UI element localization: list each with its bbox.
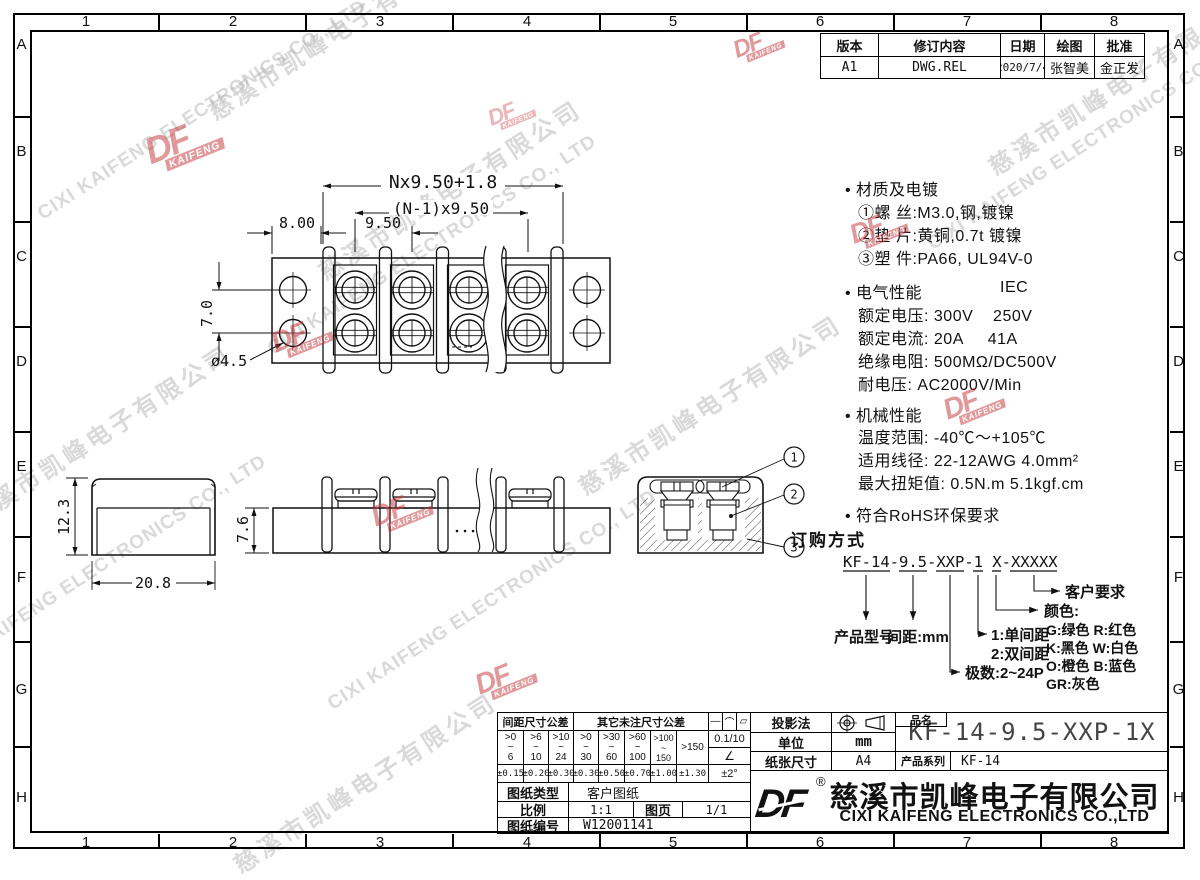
balloon-2-number: 2: [790, 488, 797, 502]
ordering-customer-label: 客户要求: [1064, 583, 1126, 601]
angle-symbol-icon: ∠: [708, 747, 751, 765]
zone-row-label: A: [1170, 37, 1187, 53]
break-gap: [484, 246, 507, 372]
company-name-en: CIXI KAIFENG ELECTRONICS CO.,LTD: [822, 808, 1167, 826]
zone-col-label: 7: [952, 835, 982, 851]
zone-col-label: 6: [805, 14, 835, 30]
revision-header: 日期: [1000, 33, 1045, 57]
revision-header: 修订内容: [878, 33, 1001, 57]
balloon-1-number: 1: [790, 451, 797, 465]
zone-row-label: H: [13, 790, 30, 806]
doc-type-label: 图纸类型: [497, 782, 569, 802]
straightness-symbol-icon: —: [709, 713, 722, 730]
zone-col-label: 8: [1099, 14, 1129, 30]
range-cell: >0~6: [497, 730, 524, 765]
dim-cover-height: 12.3: [55, 499, 73, 535]
zone-col-label: 2: [218, 835, 248, 851]
ordering-color-row: K:黑色 W:白色: [1046, 640, 1138, 656]
range-cell: >60~100: [624, 730, 651, 765]
spec-electrical-item: 绝缘电阻: 500MΩ/DC500V: [858, 348, 1057, 372]
top-view-drawing: Nx9.50+1.8 (N-1)x9.50 8.00 9.50 7.0 ø4.5: [40, 150, 640, 400]
tolerance-value: ±0.15: [497, 764, 524, 783]
zone-row-label: A: [13, 37, 30, 53]
dim-hole-diameter: ø4.5: [211, 352, 247, 370]
zone-col-label: 1: [71, 835, 101, 851]
zone-row-label: H: [1170, 790, 1187, 806]
zone-col-label: 3: [365, 14, 395, 30]
revision-description: DWG.REL: [878, 56, 1001, 79]
revision-version: A1: [820, 56, 879, 79]
spec-material-title: • 材质及电镀: [845, 176, 939, 200]
terminal-block-top-view: [272, 246, 610, 373]
ordering-color-row: G:绿色 R:红色: [1046, 622, 1136, 638]
ordering-type1-label: 1:单间距: [991, 626, 1049, 644]
zone-row-label: F: [13, 570, 30, 586]
spec-mechanical-title: • 机械性能: [845, 402, 922, 426]
doc-number-label: 图纸编号: [497, 817, 569, 834]
zone-col-label: 1: [71, 14, 101, 30]
dim-row-gap: 7.0: [198, 300, 216, 327]
revision-drawn-by: 张智美: [1044, 56, 1095, 79]
zone-col-label: 7: [952, 14, 982, 30]
range-cell: >0~30: [573, 730, 599, 765]
spec-electrical-item: 额定电压: 300V 250V: [858, 302, 1032, 326]
zone-row-label: E: [13, 459, 30, 475]
tolerance-pitch-header: 间距尺寸公差: [497, 712, 574, 731]
dim-pitch: 9.50: [365, 214, 401, 232]
zone-row-label: E: [1170, 459, 1187, 475]
doc-number-value: W12001141: [568, 817, 751, 834]
front-outline: [273, 468, 610, 553]
first-angle-projection-icon: [836, 714, 892, 732]
zone-row-label: B: [1170, 144, 1187, 160]
scale-label: 比例: [497, 801, 569, 818]
zone-col-label: 5: [658, 835, 688, 851]
tolerance-value: ±0.30: [548, 764, 574, 783]
zone-row-label: C: [13, 249, 30, 265]
tolerance-other-header: 其它未注尺寸公差: [573, 712, 709, 731]
zone-row-label: G: [1170, 682, 1187, 698]
cover-outline: [92, 479, 215, 555]
ordering-color-row: O:橙色 B:蓝色: [1046, 658, 1136, 674]
company-logo: DF: [756, 784, 816, 826]
paper-size-value: A4: [831, 751, 896, 771]
ordering-type2-label: 2:双间距: [991, 645, 1049, 663]
page-value: 1/1: [682, 801, 751, 818]
zone-row-label: D: [1170, 354, 1187, 370]
projection-label: 投影法: [750, 712, 832, 733]
doc-type-value: 客户图纸: [568, 782, 751, 802]
geometry-symbols-cell: — ⌒ ▱: [708, 712, 751, 731]
zone-col-label: 4: [512, 835, 542, 851]
spec-mechanical-item: 最大扭矩值: 0.5N.m 5.1kgf.cm: [858, 470, 1084, 494]
spec-electrical-iec: IEC: [1000, 279, 1028, 297]
product-series-label: 产品系列: [895, 751, 951, 771]
unit-label: 单位: [750, 732, 832, 752]
ordering-color-label: 颜色:: [1044, 602, 1079, 620]
spec-mechanical-item: 适用线径: 22-12AWG 4.0mm²: [858, 447, 1079, 471]
zone-row-label: G: [13, 682, 30, 698]
revision-header: 绘图: [1044, 33, 1095, 57]
page-label: 图页: [633, 801, 683, 818]
tolerance-value: ±1.30: [676, 764, 709, 783]
front-view-drawing: 7.6: [230, 440, 630, 610]
ordering-diagram: 订购方式 KF-14-9.5-XXP-1 X-XXXXX 产品型号 间距:mm …: [780, 525, 1172, 703]
spec-material-item: ③塑 件:PA66, UL94V-0: [858, 245, 1033, 269]
spec-electrical-item: 额定电流: 20A 41A: [858, 325, 1018, 349]
range-cell: >30~60: [598, 730, 625, 765]
zone-col-label: 2: [218, 14, 248, 30]
dim-end-offset: 8.00: [279, 214, 315, 232]
tolerance-value: ±0.50: [598, 764, 625, 783]
tolerance-value: ±0.30: [573, 764, 599, 783]
projection-symbol-cell: [831, 712, 896, 733]
ordering-poles-label: 极数:2~24P: [965, 664, 1044, 682]
ordering-model-label: 产品型号: [834, 628, 894, 646]
zone-col-label: 4: [512, 14, 542, 30]
zone-col-label: 8: [1099, 835, 1129, 851]
flatness-symbol-icon: ▱: [736, 713, 750, 730]
revision-header: 版本: [820, 33, 879, 57]
zone-row-label: D: [13, 354, 30, 370]
dim-cover-width: 20.8: [135, 574, 171, 592]
zone-col-label: 6: [805, 835, 835, 851]
flatness-tolerance: 0.1/10: [708, 730, 751, 748]
range-cell: >10~24: [548, 730, 574, 765]
tolerance-value: ±1.00: [650, 764, 677, 783]
zone-row-label: F: [1170, 570, 1187, 586]
ordering-pitch-label: 间距:mm: [887, 628, 949, 646]
range-cell: >100~150: [650, 730, 677, 765]
ordering-title: 订购方式: [790, 530, 866, 550]
paper-size-label: 纸张尺寸: [750, 751, 832, 771]
product-series-value: KF-14: [950, 751, 1169, 771]
scale-value: 1:1: [568, 801, 634, 818]
angle-tolerance: ±2°: [708, 764, 751, 783]
ordering-code: KF-14-9.5-XXP-1 X-XXXXX: [843, 553, 1058, 571]
revision-approved-by: 金正发: [1094, 56, 1145, 79]
revision-header: 批准: [1094, 33, 1145, 57]
top-view-dimensions: [212, 186, 563, 361]
ordering-color-row: GR:灰色: [1046, 676, 1100, 692]
zone-col-label: 3: [365, 835, 395, 851]
tolerance-value: ±0.70: [624, 764, 651, 783]
range-cell: >6~10: [523, 730, 549, 765]
unit-value: mm: [831, 732, 896, 752]
zone-row-label: B: [13, 144, 30, 160]
spec-rohs: • 符合RoHS环保要求: [845, 502, 1000, 526]
dim-total-width: Nx9.50+1.8: [389, 172, 497, 193]
zone-col-label: 5: [658, 14, 688, 30]
revision-date: 2020/7/4: [1000, 56, 1045, 79]
zone-row-label: C: [1170, 249, 1187, 265]
dim-pitch-total: (N-1)x9.50: [393, 199, 489, 218]
product-name-label: 品名: [895, 712, 947, 727]
dim-body-height: 7.6: [234, 516, 252, 543]
range-cell-last: >150: [676, 730, 709, 765]
spec-electrical-title: • 电气性能: [845, 279, 922, 303]
tolerance-value: ±0.20: [523, 764, 549, 783]
arc-symbol-icon: ⌒: [722, 713, 736, 730]
